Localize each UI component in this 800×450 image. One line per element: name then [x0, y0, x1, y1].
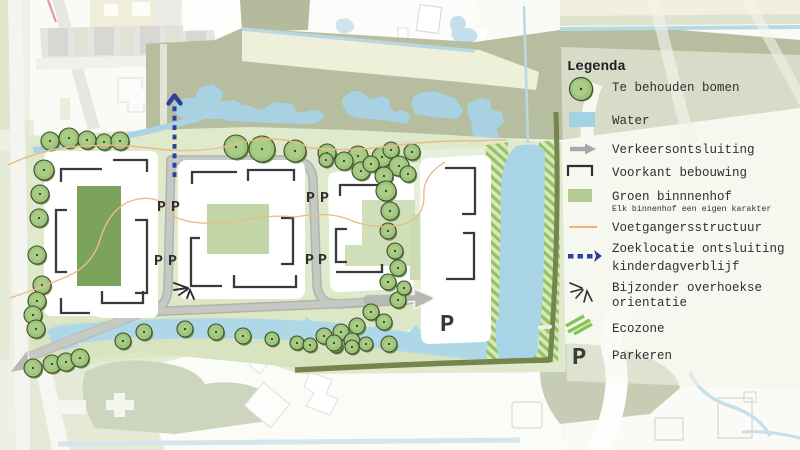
svg-text:Bijzonder overhoekse: Bijzonder overhoekse: [612, 281, 762, 295]
svg-text:P: P: [572, 345, 586, 372]
svg-text:Voorkant bebouwing: Voorkant bebouwing: [612, 166, 747, 180]
svg-text:kinderdagverblijf: kinderdagverblijf: [612, 260, 740, 274]
svg-text:P: P: [306, 190, 315, 207]
svg-text:Groen binnnenhof: Groen binnnenhof: [612, 190, 732, 204]
svg-text:Te behouden bomen: Te behouden bomen: [612, 81, 740, 95]
svg-text:P: P: [305, 252, 314, 269]
svg-text:Legenda: Legenda: [567, 59, 626, 75]
svg-text:Ecozone: Ecozone: [612, 322, 665, 336]
svg-text:Zoeklocatie ontsluiting: Zoeklocatie ontsluiting: [612, 242, 785, 256]
svg-text:Verkeersontsluiting: Verkeersontsluiting: [612, 143, 755, 157]
svg-text:P: P: [157, 199, 166, 216]
svg-text:Parkeren: Parkeren: [612, 349, 672, 363]
svg-text:Voetgangersstructuur: Voetgangersstructuur: [612, 221, 762, 235]
svg-text:P: P: [154, 253, 163, 270]
svg-text:P: P: [171, 199, 180, 216]
svg-text:orientatie: orientatie: [612, 296, 687, 310]
svg-text:P: P: [320, 190, 329, 207]
svg-text:P: P: [318, 252, 327, 269]
svg-text:Water: Water: [612, 114, 650, 128]
svg-text:Elk binnenhof een eigen karakt: Elk binnenhof een eigen karakter: [612, 204, 771, 214]
svg-text:P: P: [168, 253, 177, 270]
svg-text:P: P: [440, 312, 454, 339]
